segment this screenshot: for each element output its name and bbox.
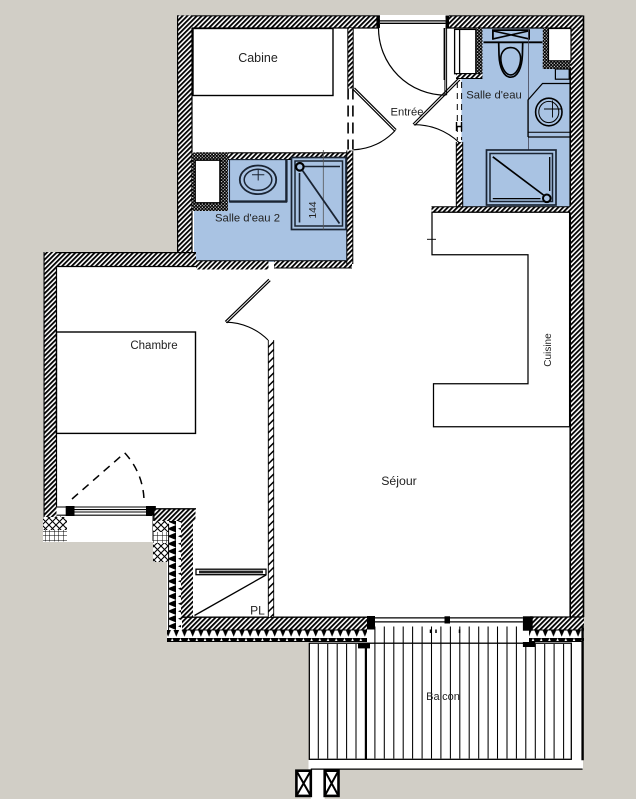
svg-text:PL: PL (250, 604, 265, 618)
svg-text:Cuisine: Cuisine (543, 333, 554, 367)
svg-text:Salle d'eau: Salle d'eau (466, 90, 522, 102)
svg-text:Balcon: Balcon (426, 691, 460, 703)
svg-text:Cabine: Cabine (238, 51, 278, 65)
svg-text:Salle d'eau 2: Salle d'eau 2 (215, 213, 280, 225)
svg-text:144: 144 (308, 201, 319, 218)
svg-text:Chambre: Chambre (130, 340, 177, 352)
svg-text:Séjour: Séjour (381, 474, 417, 488)
svg-text:Entrée: Entrée (391, 107, 424, 119)
